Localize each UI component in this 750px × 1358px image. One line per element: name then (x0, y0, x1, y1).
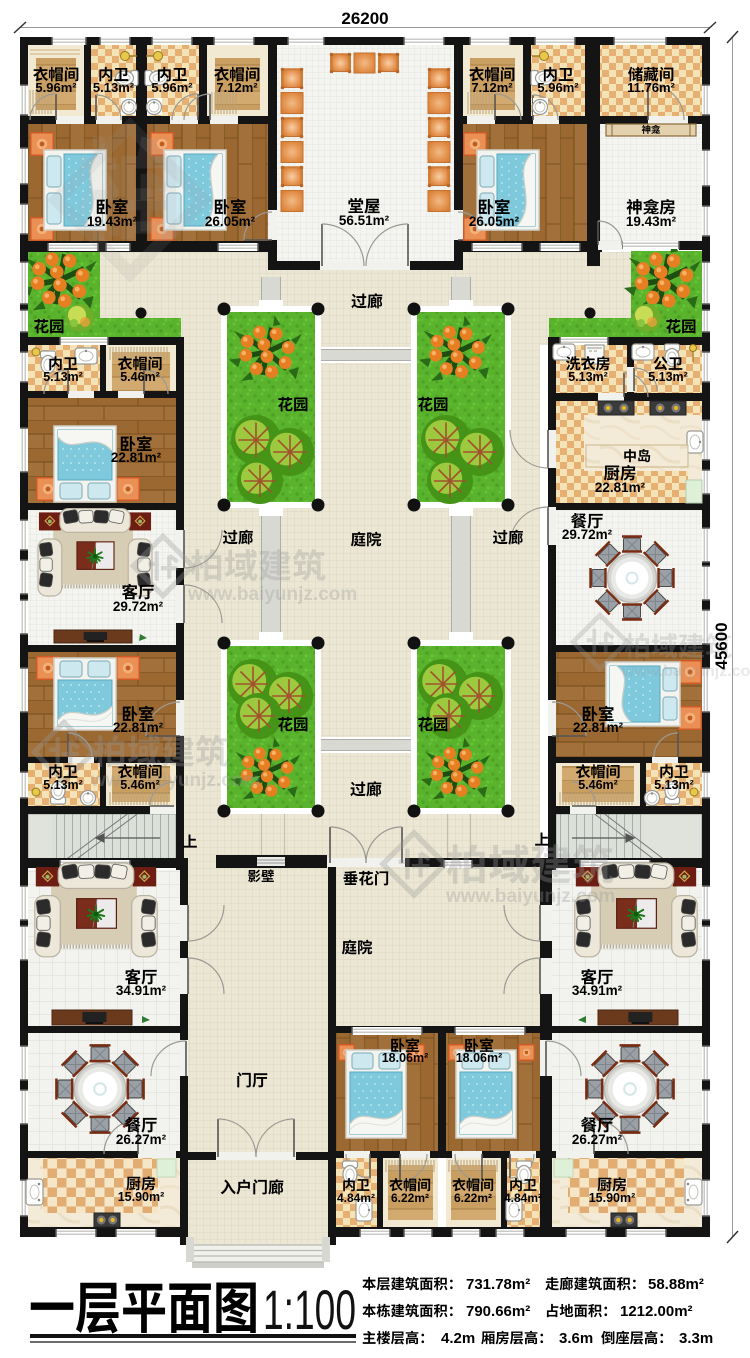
svg-text:11.76m²: 11.76m² (627, 80, 675, 95)
svg-text:790.66m²: 790.66m² (466, 1303, 530, 1320)
svg-text:www.baiyunjz.com: www.baiyunjz.com (187, 584, 357, 605)
svg-text:5.96m²: 5.96m² (151, 80, 193, 95)
svg-text:34.91m²: 34.91m² (116, 983, 167, 998)
svg-text:1:100: 1:100 (263, 1278, 356, 1341)
svg-text:19.43m²: 19.43m² (626, 214, 677, 229)
svg-text:5.96m²: 5.96m² (537, 80, 579, 95)
svg-text:5.13m²: 5.13m² (43, 370, 83, 384)
svg-text:22.81m²: 22.81m² (111, 450, 162, 465)
svg-text:6.22m²: 6.22m² (454, 1191, 492, 1205)
svg-text:5.46m²: 5.46m² (120, 778, 160, 792)
svg-text:3.3m: 3.3m (679, 1330, 713, 1347)
svg-text:3.6m: 3.6m (559, 1330, 593, 1347)
svg-text:5.13m²: 5.13m² (568, 370, 608, 384)
svg-text:5.13m²: 5.13m² (648, 370, 688, 384)
svg-text:5.13m²: 5.13m² (43, 778, 83, 792)
svg-text:5.13m²: 5.13m² (654, 778, 694, 792)
svg-text:18.06m²: 18.06m² (382, 1051, 429, 1065)
svg-text:19.43m²: 19.43m² (87, 214, 138, 229)
svg-text:26.05m²: 26.05m² (205, 214, 256, 229)
svg-text:58.88m²: 58.88m² (648, 1276, 704, 1293)
svg-text:15.90m²: 15.90m² (589, 1191, 636, 1205)
svg-text:29.72m²: 29.72m² (113, 599, 164, 614)
svg-text:4.84m²: 4.84m² (504, 1191, 542, 1205)
svg-text:22.81m²: 22.81m² (595, 480, 646, 495)
svg-text:26.27m²: 26.27m² (572, 1132, 623, 1147)
svg-text:www.baiyunjz.com: www.baiyunjz.com (90, 770, 260, 791)
svg-text:6.22m²: 6.22m² (391, 1191, 429, 1205)
svg-text:22.81m²: 22.81m² (113, 720, 164, 735)
svg-text:www.baiyunjz.com: www.baiyunjz.com (445, 886, 615, 907)
svg-text:26.27m²: 26.27m² (116, 1132, 167, 1147)
svg-text:7.12m²: 7.12m² (216, 80, 258, 95)
svg-text:29.72m²: 29.72m² (562, 527, 613, 542)
svg-text:5.13m²: 5.13m² (93, 80, 135, 95)
svg-text:5.96m²: 5.96m² (35, 80, 77, 95)
svg-text:4.2m: 4.2m (441, 1330, 475, 1347)
svg-text:26.05m²: 26.05m² (469, 214, 520, 229)
svg-text:56.51m²: 56.51m² (339, 213, 390, 228)
svg-text:4.84m²: 4.84m² (337, 1191, 375, 1205)
svg-text:15.90m²: 15.90m² (118, 1190, 165, 1204)
svg-text:18.06m²: 18.06m² (456, 1051, 503, 1065)
svg-text:26200: 26200 (341, 9, 388, 28)
svg-text:45600: 45600 (712, 622, 731, 669)
svg-text:5.46m²: 5.46m² (120, 370, 160, 384)
svg-text:731.78m²: 731.78m² (466, 1276, 530, 1293)
svg-text:7.12m²: 7.12m² (471, 80, 513, 95)
svg-text:5.46m²: 5.46m² (578, 778, 618, 792)
svg-text:34.91m²: 34.91m² (572, 983, 623, 998)
svg-text:22.81m²: 22.81m² (573, 720, 624, 735)
svg-text:1212.00m²: 1212.00m² (620, 1303, 693, 1320)
